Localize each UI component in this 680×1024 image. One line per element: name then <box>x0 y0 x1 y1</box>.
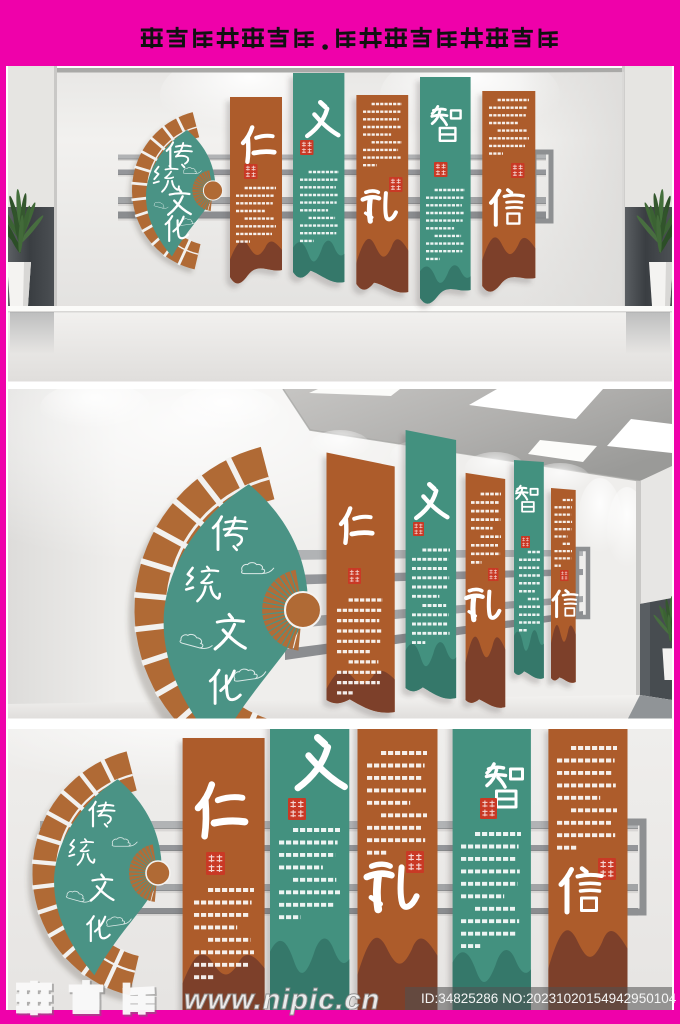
svg-text:ID:34825286 NO:202310201549429: ID:34825286 NO:20231020154942950104 <box>421 991 677 1006</box>
svg-text:www.nipic.cn: www.nipic.cn <box>184 984 380 1016</box>
